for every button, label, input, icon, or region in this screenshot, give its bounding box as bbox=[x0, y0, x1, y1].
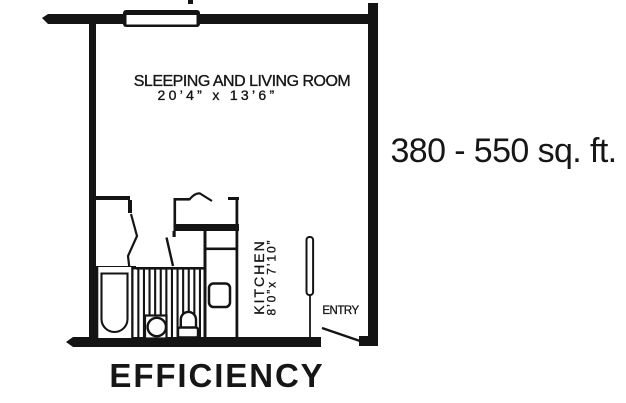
svg-text:8’0”x 7’10”: 8’0”x 7’10” bbox=[265, 239, 279, 316]
svg-text:380 - 550 sq. ft.: 380 - 550 sq. ft. bbox=[390, 132, 616, 170]
svg-text:EFFICIENCY: EFFICIENCY bbox=[109, 357, 324, 394]
svg-text:20’4” x 13’6”: 20’4” x 13’6” bbox=[158, 87, 278, 103]
svg-text:ENTRY: ENTRY bbox=[322, 305, 359, 317]
